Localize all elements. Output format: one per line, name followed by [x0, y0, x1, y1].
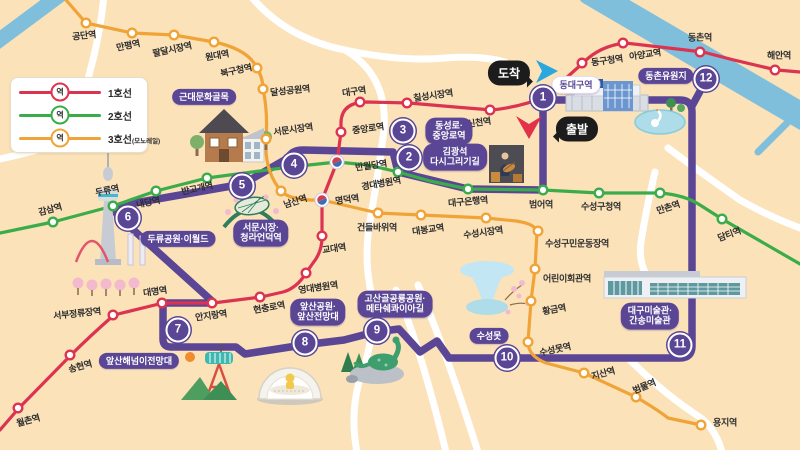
tour-badge-line: 중앙로역 [432, 131, 465, 141]
station-dot [109, 311, 118, 320]
station-label: 해안역 [767, 49, 791, 62]
station-dot [356, 98, 365, 107]
station-dot [595, 189, 604, 198]
apsan-observatory-illustration [257, 368, 323, 405]
station-dot [262, 135, 271, 144]
tour-stop-badge: 앞산해넘이전망대 [99, 353, 179, 369]
station-label: 수성구청역 [581, 200, 621, 213]
legend-row: 역2호선 [19, 104, 139, 126]
road [250, 0, 505, 62]
station-dot [580, 369, 589, 378]
station-dot [403, 99, 412, 108]
daegu-tour-map: 동대구역 [0, 0, 800, 450]
station-dot [697, 421, 706, 430]
legend-station-icon: 역 [51, 106, 70, 125]
legend-box: 역1호선역2호선역3호선(모노레일) [10, 77, 148, 153]
station-dot [486, 106, 495, 115]
tour-badge-line: 동촌유원지 [645, 71, 686, 81]
station-label: 건들바위역 [357, 221, 397, 234]
tour-stop-badge: 고산골공룡공원·메타쉐콰이아길 [358, 291, 433, 318]
station-label: 용지역 [713, 416, 737, 429]
tour-badge-line: 김광석 [430, 147, 480, 157]
tour-badge-line: 대구미술관· [628, 306, 672, 316]
tour-stop-number: 8 [293, 331, 318, 356]
station-dot [49, 218, 58, 227]
legend-station-icon: 역 [51, 129, 70, 148]
tour-badge-line: 동대구역 [559, 80, 592, 90]
road [640, 172, 655, 278]
tour-stop-number: 1 [531, 86, 556, 111]
station-dot [302, 269, 311, 278]
tour-badge-line: 동성로· [432, 121, 465, 131]
station-dot [158, 299, 167, 308]
station-dot [619, 39, 628, 48]
station-dot [256, 293, 265, 302]
transfer-station-dot [313, 191, 332, 210]
legend-line-label: 3호선(모노레일) [108, 131, 160, 146]
station-dot [527, 297, 536, 306]
tour-stop-badge: 수성못 [470, 328, 509, 344]
legend-station-icon: 역 [51, 83, 70, 102]
station-dot [696, 48, 705, 57]
legend-line-sample: 역 [19, 114, 101, 117]
station-label: 공단역 [71, 27, 96, 42]
arrival-bubble: 도착 [488, 61, 530, 86]
station-dot [109, 202, 118, 211]
tour-stop-badge: 동촌유원지 [638, 68, 693, 84]
road [628, 358, 722, 450]
legend-line-sample: 역 [19, 137, 101, 140]
station-dot [337, 128, 346, 137]
station-dot [318, 232, 327, 241]
tour-stop-number: 10 [495, 346, 520, 371]
station-dot [210, 38, 219, 47]
tour-badge-line: 앞산해넘이전망대 [106, 356, 172, 366]
tour-stop-number: 6 [116, 206, 141, 231]
station-dot [208, 299, 217, 308]
station-dot [718, 215, 727, 224]
station-dot [656, 189, 665, 198]
legend-line-label: 2호선 [108, 108, 132, 123]
station-label: 수성구민운동장역 [545, 237, 609, 250]
tour-stop-badge: 김광석다시그리기길 [423, 144, 487, 171]
departure-arrow-icon [516, 116, 542, 139]
road [345, 50, 384, 450]
road [668, 148, 800, 228]
station-dot [771, 66, 780, 75]
station-dot [253, 64, 262, 73]
tour-badge-line: 간송미술관 [628, 316, 672, 326]
tour-badge-line: 수성못 [477, 331, 502, 341]
tour-stop-number: 4 [282, 153, 307, 178]
tour-badge-line: 고산골공룡공원· [365, 294, 426, 304]
apsan-sunset-tower-illustration [181, 344, 237, 400]
tour-stop-number: 9 [365, 319, 390, 344]
tour-stop-number: 11 [668, 333, 693, 358]
tour-stop-badge: 대구미술관·간송미술관 [621, 303, 679, 330]
tour-badge-line: 앞산전망대 [297, 312, 338, 322]
station-dot [524, 338, 533, 347]
legend-line-label: 1호선 [108, 85, 132, 100]
tour-stop-badge: 서문시장·청라언덕역 [233, 220, 288, 247]
station-label: 동촌역 [688, 31, 712, 44]
station-label: 어린이회관역 [543, 272, 591, 285]
suseongmot-fountain-illustration [460, 261, 531, 315]
station-dot [14, 404, 23, 413]
legend-row: 역3호선(모노레일) [19, 127, 139, 149]
kim-gwangseok-mural-illustration [489, 145, 524, 183]
tour-stop-badge: 두류공원·이월드 [141, 231, 216, 247]
station-dot [277, 187, 286, 196]
station-dot [374, 209, 383, 218]
station-dot [539, 186, 548, 195]
station-dot [66, 351, 75, 360]
station-dot [578, 59, 587, 68]
station-dot [259, 85, 268, 94]
tour-badge-line: 서문시장· [240, 223, 281, 233]
station-dot [531, 265, 540, 274]
tour-stop-number: 5 [230, 174, 255, 199]
tour-badge-line: 근대문화골목 [179, 92, 229, 102]
tour-badge-line: 메타쉐콰이아길 [365, 304, 426, 314]
daegu-art-museum-illustration [604, 271, 746, 298]
tour-stop-badge: 동대구역 [551, 76, 600, 94]
tour-badge-line: 앞산공원· [297, 302, 338, 312]
station-dot [170, 31, 179, 40]
departure-bubble: 출발 [556, 117, 598, 142]
legend-line-suffix: (모노레일) [132, 138, 160, 145]
tour-stop-number: 12 [694, 67, 719, 92]
station-label: 범어역 [529, 198, 553, 211]
tour-stop-badge: 앞산공원·앞산전망대 [290, 299, 345, 326]
river [0, 0, 64, 44]
tour-badge-line: 두류공원·이월드 [148, 234, 209, 244]
station-dot [464, 185, 473, 194]
tour-stop-number: 7 [166, 318, 191, 343]
station-dot [82, 19, 91, 28]
tour-stop-badge: 동성로·중앙로역 [425, 118, 472, 145]
transfer-station-dot [328, 153, 347, 172]
tour-badge-line: 다시그리기길 [430, 157, 480, 167]
tour-stop-badge: 근대문화골목 [172, 89, 236, 105]
legend-row: 역1호선 [19, 81, 139, 103]
station-dot [534, 227, 543, 236]
station-dot [417, 211, 426, 220]
legend-line-sample: 역 [19, 91, 101, 94]
tour-stop-number: 3 [391, 119, 416, 144]
tour-badge-line: 청라언덕역 [240, 233, 281, 243]
modern-culture-alley-illustration [190, 109, 272, 162]
station-dot [482, 214, 491, 223]
tour-stop-number: 2 [397, 146, 422, 171]
